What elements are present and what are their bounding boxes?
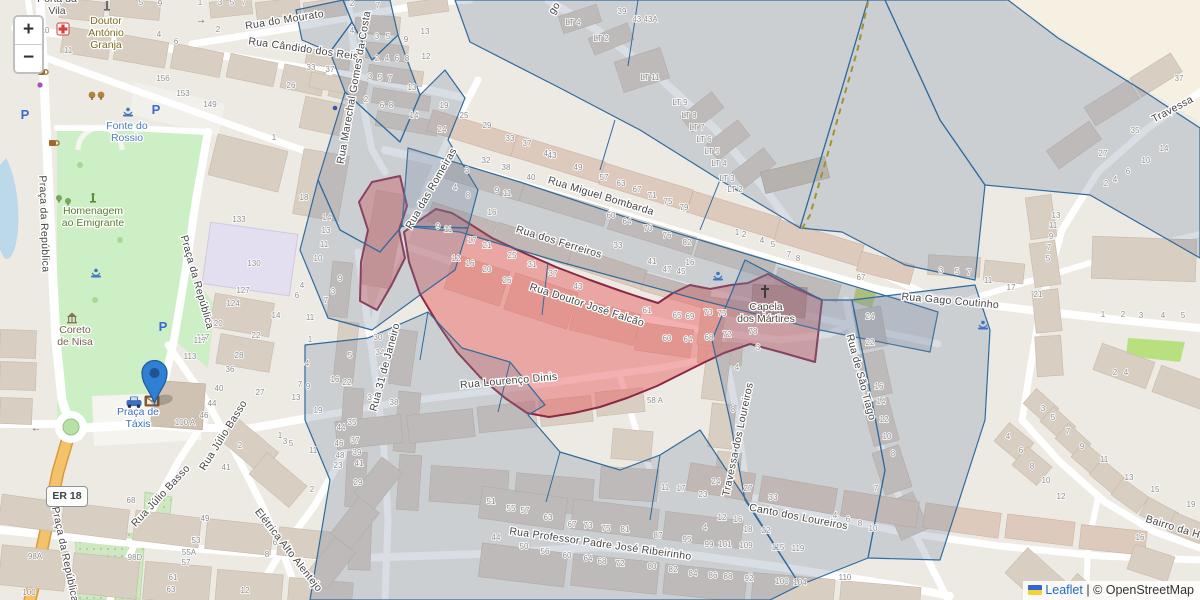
house-number: 92 (745, 574, 754, 583)
house-number: 2 (375, 54, 380, 63)
house-number: 4 (1006, 432, 1011, 441)
house-number: 61 (643, 306, 652, 315)
house-number: 7 (324, 296, 329, 305)
house-number: 64 (584, 554, 593, 563)
oneway-arrow-icon: → (196, 15, 206, 26)
house-number: 22 (866, 338, 875, 347)
house-number: 9 (1049, 232, 1054, 241)
house-number: 9 (1080, 442, 1085, 451)
house-number: 39 (618, 7, 627, 16)
house-number: 33 (769, 493, 778, 502)
house-number: 75 (602, 524, 611, 533)
house-number: 8 (466, 191, 471, 200)
house-number: 6 (395, 54, 400, 63)
house-number: 16 (488, 208, 497, 217)
house-number: 10 (883, 432, 892, 441)
house-number: 21 (483, 241, 492, 250)
house-number: 3 (375, 32, 380, 41)
house-number: 14 (410, 111, 419, 120)
house-number: 11 (306, 313, 315, 322)
house-number: 24 (866, 312, 875, 321)
house-number: 130 (247, 259, 261, 268)
zoom-in-button[interactable]: + (15, 17, 42, 45)
house-number: 35 (348, 418, 357, 427)
house-number: 95 (683, 535, 692, 544)
house-number: 12 (452, 254, 461, 263)
house-number: 4 (1124, 368, 1129, 377)
house-number: 78 (749, 327, 758, 336)
building (215, 569, 284, 600)
house-number: 20 (483, 265, 492, 274)
house-number: 156 (156, 74, 170, 83)
attribution: Leaflet | © OpenStreetMap (1023, 581, 1200, 600)
house-number: 104 (793, 578, 807, 587)
house-number: 64 (684, 335, 693, 344)
house-number: 36 (226, 365, 235, 374)
building (611, 428, 653, 461)
house-number: 22 (252, 331, 261, 340)
house-number: LT 9 (672, 98, 688, 107)
house-number: 100 (775, 577, 789, 586)
house-number: 32 (482, 156, 491, 165)
house-number: 58 A (647, 396, 664, 405)
house-number: 115 (772, 543, 785, 552)
house-number: 57 (600, 173, 609, 182)
house-number: 24 (438, 125, 447, 134)
house-number: 8 (858, 519, 863, 528)
parking-icon: P (152, 102, 161, 117)
house-number: 43 (548, 151, 557, 160)
house-number: 44 (208, 399, 217, 408)
house-number: 68 (705, 333, 714, 342)
leaflet-link[interactable]: Leaflet (1045, 583, 1083, 597)
house-number: 27 (256, 388, 265, 397)
house-number: 87 (654, 531, 663, 540)
house-number: 4 (385, 54, 390, 63)
house-number: 75 (718, 309, 727, 318)
house-number: 6 (295, 291, 300, 300)
house-number: 2 (350, 0, 355, 8)
house-number: 7 (376, 1, 381, 10)
house-number: 5 (955, 267, 960, 276)
map-canvas[interactable]: 5913572251014114615615314912633372741335… (0, 0, 1200, 600)
house-number: 12 (241, 586, 250, 595)
svg-text:P: P (152, 102, 161, 117)
house-number: 124 (226, 299, 240, 308)
house-number: 13 (1125, 473, 1134, 482)
house-number: 11 (444, 225, 453, 234)
house-number: 43 (574, 282, 583, 291)
place-label-coreto-de-nisa: Coretode Nisa (57, 324, 93, 348)
house-number: 9 (436, 222, 441, 231)
house-number: 81 (621, 525, 630, 534)
house-number: 6 (1019, 446, 1024, 455)
house-number: 84 (689, 569, 698, 578)
place-label-doutor-antonio-granja: DoutorAntónioGranja (88, 15, 124, 51)
house-number: 24 (712, 477, 721, 486)
house-number: 4 (1161, 311, 1166, 320)
house-number: 26 (287, 81, 296, 90)
place-label-fonte-do-rossio: Fonte doRossio (106, 120, 148, 144)
house-number: 9 (404, 35, 409, 44)
house-number: 41 (222, 463, 231, 472)
house-number: 63 (617, 179, 626, 188)
house-number: 11 (1100, 455, 1109, 464)
house-number: 2 (310, 485, 315, 494)
house-number: 3 (331, 287, 336, 296)
house-number: 5 (348, 351, 353, 360)
house-number: 61 (169, 573, 178, 582)
house-number: 153 (176, 89, 190, 98)
house-number: 22 (762, 526, 771, 535)
house-number: 73 (704, 308, 713, 317)
house-number: 3 (465, 166, 470, 175)
house-number: 53 (192, 536, 201, 545)
house-number: 11 (64, 46, 73, 55)
house-number: 11 (320, 240, 329, 249)
house-number: 5 (386, 32, 391, 41)
building (0, 361, 36, 390)
house-number: 69 (686, 312, 695, 321)
house-number: 4 (760, 236, 765, 245)
house-number: 60 (663, 334, 672, 343)
house-number: 1 (272, 133, 277, 142)
house-number: 101 (718, 540, 732, 549)
osm-link: © OpenStreetMap (1093, 583, 1194, 597)
house-number: 11 (309, 446, 318, 455)
building (0, 397, 32, 424)
house-number: 9 (158, 0, 163, 8)
house-number: 12 (422, 52, 431, 61)
parking-icon: P (21, 107, 30, 122)
house-number: 10 (869, 524, 878, 533)
house-number: 5 (378, 73, 383, 82)
pharmacy-icon (57, 23, 69, 35)
house-number: 33 (506, 134, 515, 143)
house-number: 63 (167, 585, 176, 594)
house-number: 48 (336, 451, 345, 460)
house-number: 10 (1042, 476, 1051, 485)
house-number: 16 (1136, 533, 1145, 542)
house-number: 6 (174, 37, 179, 46)
house-number: 109 (739, 541, 753, 550)
house-number: 29 (483, 121, 492, 130)
house-number: 15 (1151, 485, 1160, 494)
house-number: 25 (508, 251, 517, 260)
house-number: 11 (503, 189, 512, 198)
house-number: 49 (574, 163, 583, 172)
zoom-out-button[interactable]: − (15, 45, 42, 72)
house-number: 37 (549, 269, 558, 278)
house-number: 37 (326, 65, 335, 74)
house-number: 14 (272, 311, 281, 320)
house-number: 38 (390, 398, 399, 407)
house-number: 30 (374, 333, 383, 342)
house-number: 4 (453, 183, 458, 192)
house-number: 67 (568, 520, 577, 529)
house-number: 7 (242, 0, 247, 7)
house-number: 82 (683, 238, 692, 247)
house-number: LT 11 (640, 73, 660, 82)
house-number: 21 (1034, 290, 1043, 299)
house-number: 3 (1041, 404, 1046, 413)
house-number: 18 (300, 193, 309, 202)
house-number: 4 (350, 26, 355, 35)
house-number: 99 (705, 540, 714, 549)
house-number: 16 (734, 515, 743, 524)
house-number: 72 (723, 330, 732, 339)
zoom-control: + − (13, 15, 44, 74)
house-number: 37 (523, 139, 532, 148)
house-number: 40 (215, 384, 224, 393)
house-number: 5 (771, 240, 776, 249)
house-number: 2 (1113, 368, 1118, 377)
house-number: 57 (182, 558, 191, 567)
house-number: 47 (663, 265, 672, 274)
house-number: 2 (1121, 310, 1126, 319)
house-number: 13 (408, 83, 417, 92)
svg-text:←: ← (31, 423, 41, 434)
house-number: 7 (967, 268, 972, 277)
house-number: 8 (389, 101, 394, 110)
house-number: 5 (1051, 413, 1056, 422)
house-number: 1 (1101, 310, 1106, 319)
house-number: 7 (1066, 427, 1071, 436)
roundabout (55, 411, 87, 443)
house-number: 1 (735, 228, 740, 237)
house-number: 31 (528, 260, 537, 269)
house-number: 11 (984, 276, 993, 285)
house-number: 2 (216, 25, 221, 34)
house-number: 2 (742, 230, 747, 239)
house-number: 4 (703, 523, 708, 532)
house-number: 37 (351, 436, 360, 445)
house-number: 55A (182, 548, 197, 557)
house-number: 16 (331, 375, 340, 384)
house-number: 55 (507, 504, 516, 513)
house-number: 8 (1030, 462, 1035, 471)
house-number: 113 (184, 352, 197, 361)
house-number: 27 (744, 484, 753, 493)
house-number: 40 (527, 173, 536, 182)
house-number: 6 (380, 101, 385, 110)
house-number: 22 (343, 378, 352, 387)
house-number: 35 (1131, 126, 1140, 135)
house-number: 67 (633, 185, 642, 194)
house-number: 23 (334, 461, 343, 470)
house-number: LT 7 (689, 123, 705, 132)
house-number: 79 (680, 203, 689, 212)
house-number: 12 (1057, 492, 1066, 501)
house-number: 17 (468, 236, 477, 245)
house-number: 25 (460, 111, 469, 120)
house-number: 5 (1181, 311, 1186, 320)
house-number: 14 (323, 213, 332, 222)
house-number: 98A (28, 552, 43, 561)
house-number: 4 (735, 363, 740, 372)
house-number: 29 (354, 478, 363, 487)
house-number: 49 (201, 514, 210, 523)
house-number: 37 (1175, 74, 1184, 83)
house-number: 45 (677, 267, 686, 276)
house-number: LT 4 (711, 159, 727, 168)
house-number: 56 (541, 547, 550, 556)
building (0, 329, 36, 358)
house-number: 7 (388, 74, 393, 83)
poi-dot-icon (333, 106, 338, 111)
house-number: 13 (292, 393, 301, 402)
house-number: 71 (648, 191, 657, 200)
traffic-signal-icon (37, 82, 42, 87)
house-number: 4 (157, 30, 162, 39)
house-number: 4 (305, 359, 310, 368)
house-number: 51 (487, 497, 496, 506)
house-number: 11 (661, 483, 670, 492)
house-number: 7 (874, 484, 879, 493)
house-number: 28 (235, 351, 244, 360)
house-number: 3 (218, 0, 223, 7)
house-number: 68 (127, 496, 136, 505)
house-number: 46 (335, 439, 344, 448)
house-number: LT 6 (696, 135, 712, 144)
house-number: 8 (796, 254, 801, 263)
house-number: 127 (236, 286, 250, 295)
house-number: 98D (128, 553, 143, 562)
building (1035, 335, 1064, 377)
house-number: 2 (238, 441, 243, 450)
house-number: 2 (364, 95, 369, 104)
house-number: 8 (405, 54, 410, 63)
house-number: 33 (307, 63, 316, 72)
house-number: 5 (230, 0, 235, 7)
house-number: 16 (875, 382, 884, 391)
house-number: 9 (306, 382, 311, 391)
house-number: 133 (232, 215, 246, 224)
house-number: 60 (607, 211, 616, 220)
house-number: 57 (521, 506, 530, 515)
house-number: 5 (139, 0, 144, 7)
house-number: 119 (792, 544, 805, 553)
house-number: 17 (677, 484, 686, 493)
house-number: 68 (598, 557, 607, 566)
house-number: LT 2 (593, 34, 609, 43)
house-number: 17 (1007, 283, 1016, 292)
house-number: 100 A (175, 418, 196, 427)
house-number: 13 (1052, 211, 1061, 220)
house-number: 44 (337, 423, 346, 432)
house-number: 16 (686, 258, 695, 267)
house-number: 19 (1187, 500, 1196, 509)
house-number: 64 (623, 217, 632, 226)
house-number: 75 (664, 197, 673, 206)
house-number: 80 (648, 562, 657, 571)
house-number: 1 (198, 0, 203, 7)
house-number: 3 (756, 343, 761, 352)
house-number: 4 (300, 281, 305, 290)
house-number: 19 (314, 406, 323, 415)
house-number: LT 8 (681, 111, 697, 120)
house-number: 50 (520, 542, 529, 551)
oneway-arrow-icon: ← (31, 423, 41, 434)
house-number: 23 (699, 490, 708, 499)
house-number: 10 (314, 254, 323, 263)
house-number: 16 (466, 259, 475, 268)
house-number: 76 (663, 231, 672, 240)
place-label-homenagem-ao-emigrante: Homenagemao Emigrante (62, 205, 125, 229)
house-number: LT 3 (719, 174, 735, 183)
house-number: 65 (673, 311, 682, 320)
house-number: 70 (644, 224, 653, 233)
house-number: 4 (1113, 175, 1118, 184)
svg-text:→: → (196, 15, 206, 26)
house-number: 1 (308, 335, 313, 344)
house-number: LT 2 (727, 185, 743, 194)
house-number: 60 (563, 551, 572, 560)
house-number: 3 (283, 437, 288, 446)
parking-icon: P (159, 319, 168, 334)
house-number: 8 (265, 550, 270, 559)
house-number: 46 (200, 411, 209, 420)
house-number: 33 (614, 241, 623, 250)
house-number: 41 (648, 257, 657, 266)
house-number: 18 (744, 525, 753, 534)
house-number: 10 (1142, 156, 1151, 165)
house-number: 5 (289, 439, 294, 448)
house-number: 82 (669, 565, 678, 574)
house-number: 39 (353, 448, 362, 457)
house-number: 13 (322, 226, 331, 235)
house-number: 3 (1139, 311, 1144, 320)
svg-text:P: P (159, 319, 168, 334)
house-number: 14 (1160, 144, 1169, 153)
house-number: LT 5 (704, 147, 720, 156)
house-number: 26 (503, 276, 512, 285)
house-number: 63 (544, 513, 553, 522)
house-number: 13 (421, 27, 430, 36)
house-number: 67 (857, 273, 866, 282)
house-number: 88 (724, 572, 733, 581)
house-number: 3 (939, 266, 944, 275)
house-number: 44 (492, 533, 501, 542)
house-number: 8 (891, 449, 896, 458)
house-number: 12 (718, 513, 727, 522)
house-number: 43 43A (632, 15, 658, 24)
house-number: 6 (1126, 167, 1131, 176)
house-number: 38 (502, 163, 511, 172)
house-number: 9 (495, 186, 500, 195)
house-number: 14 (877, 397, 886, 406)
house-number: 110 (839, 573, 852, 582)
house-number: 3 (368, 72, 373, 81)
house-number: 73 (584, 521, 593, 530)
house-number: 2 (1104, 179, 1109, 188)
er18-shield: ER 18 (46, 486, 88, 507)
house-number: LT 4 (565, 18, 581, 27)
house-number: 7 (1047, 243, 1052, 252)
house-number: 7 (787, 250, 792, 259)
house-number: 149 (203, 100, 217, 109)
house-number: 27 (1099, 149, 1108, 158)
svg-text:P: P (21, 107, 30, 122)
house-number: 11 (1049, 221, 1058, 230)
house-number: 12 (880, 415, 889, 424)
house-number: 9 (338, 274, 343, 283)
house-number: 100 (22, 588, 36, 597)
house-number: 7 (298, 380, 303, 389)
house-number: 117 (194, 336, 207, 345)
house-number: 72 (616, 559, 625, 568)
house-number: 19 (440, 101, 449, 110)
